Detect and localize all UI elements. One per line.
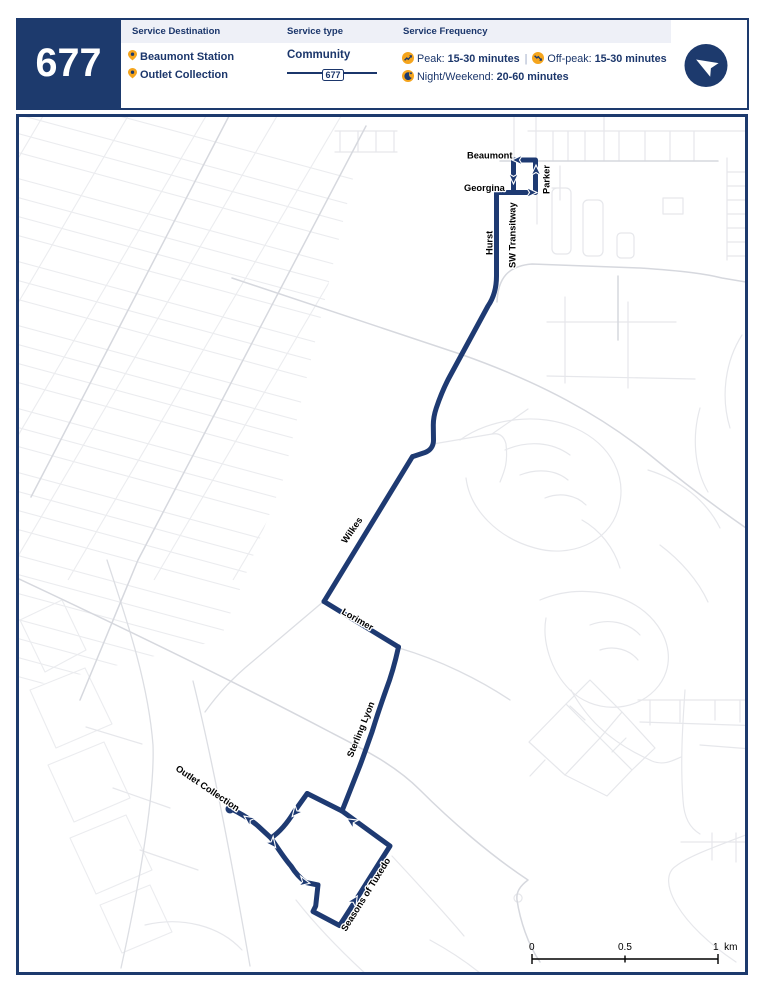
svg-text:Hurst: Hurst — [485, 231, 495, 255]
svg-text:1 km: 1 km — [713, 942, 737, 953]
svg-text:Georgina: Georgina — [464, 183, 506, 193]
svg-text:Parker: Parker — [542, 165, 552, 194]
svg-text:0.5: 0.5 — [618, 942, 632, 953]
svg-text:Beaumont: Beaumont — [467, 151, 512, 161]
svg-text:0: 0 — [529, 942, 535, 953]
svg-text:SW Transitway: SW Transitway — [508, 202, 518, 268]
